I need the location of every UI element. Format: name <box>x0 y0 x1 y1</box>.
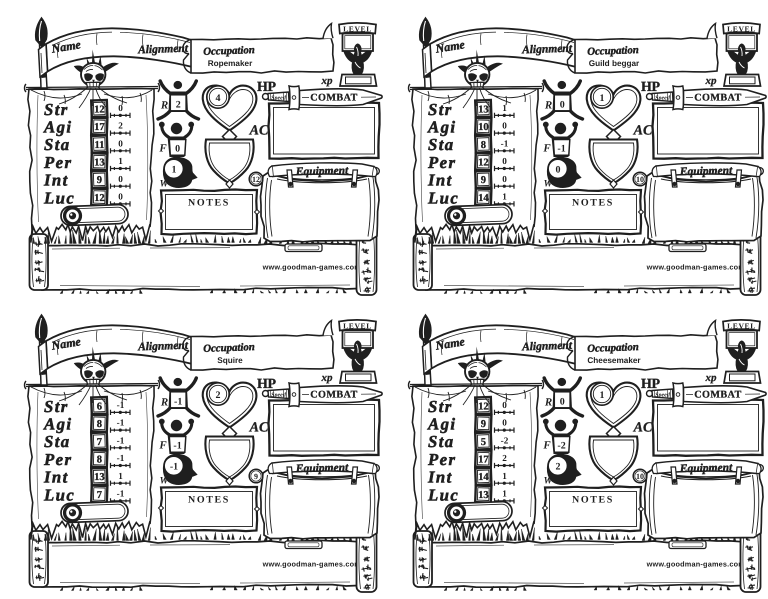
svg-text:12: 12 <box>94 193 105 204</box>
svg-text:13: 13 <box>94 472 105 483</box>
svg-text:Speed: Speed <box>271 391 287 398</box>
svg-text:10: 10 <box>636 472 644 481</box>
svg-text:Equipment: Equipment <box>679 165 734 178</box>
svg-text:LEVEL: LEVEL <box>727 25 756 34</box>
svg-text:LEVEL: LEVEL <box>343 25 372 34</box>
svg-text:7: 7 <box>97 437 102 448</box>
svg-text:-1: -1 <box>117 489 125 499</box>
svg-text:www.goodman-games.com: www.goodman-games.com <box>262 560 362 569</box>
svg-text:AC: AC <box>633 124 653 139</box>
svg-text:-1: -1 <box>501 138 509 148</box>
svg-text:0: 0 <box>118 103 123 113</box>
svg-text:xp: xp <box>705 372 718 384</box>
svg-text:7: 7 <box>97 490 102 501</box>
svg-text:NOTES: NOTES <box>572 198 614 209</box>
svg-text:13: 13 <box>478 104 489 115</box>
svg-text:Sta: Sta <box>428 432 455 451</box>
svg-text:1: 1 <box>118 471 123 481</box>
svg-text:HP: HP <box>641 377 660 392</box>
svg-text:2: 2 <box>216 390 221 401</box>
svg-text:R: R <box>160 100 168 112</box>
svg-text:Str: Str <box>428 397 453 416</box>
svg-text:COMBAT: COMBAT <box>694 93 742 104</box>
svg-text:0: 0 <box>118 174 123 184</box>
svg-text:xp: xp <box>321 75 334 87</box>
svg-text:6: 6 <box>97 401 102 412</box>
svg-text:Occupation: Occupation <box>203 44 255 58</box>
svg-text:Guild beggar: Guild beggar <box>589 59 640 68</box>
svg-text:R: R <box>160 397 168 409</box>
svg-text:2: 2 <box>118 121 123 131</box>
svg-text:0: 0 <box>175 144 180 155</box>
svg-text:Int: Int <box>427 171 453 190</box>
svg-text:0: 0 <box>502 156 507 166</box>
svg-text:8: 8 <box>97 455 102 466</box>
svg-text:F: F <box>158 440 167 452</box>
svg-text:xp: xp <box>705 75 718 87</box>
svg-text:4: 4 <box>216 93 221 104</box>
svg-text:2: 2 <box>176 99 181 110</box>
svg-text:0: 0 <box>502 121 507 131</box>
svg-text:Sta: Sta <box>44 432 71 451</box>
svg-text:www.goodman-games.com: www.goodman-games.com <box>646 263 746 272</box>
svg-text:-1: -1 <box>173 441 181 452</box>
svg-text:2: 2 <box>556 462 561 473</box>
svg-text:10: 10 <box>636 175 644 184</box>
svg-text:Alignment: Alignment <box>137 43 189 57</box>
svg-text:11: 11 <box>94 140 104 151</box>
svg-text:0: 0 <box>118 138 123 148</box>
svg-text:Squire: Squire <box>217 356 243 365</box>
svg-text:HP: HP <box>257 377 276 392</box>
svg-text:Equipment: Equipment <box>679 462 734 475</box>
svg-text:Occupation: Occupation <box>203 341 255 355</box>
svg-text:Str: Str <box>428 100 453 119</box>
svg-text:1: 1 <box>118 156 123 166</box>
svg-text:Speed: Speed <box>655 94 671 101</box>
svg-text:14: 14 <box>478 193 489 204</box>
svg-text:xp: xp <box>321 372 334 384</box>
svg-text:9: 9 <box>481 175 486 186</box>
svg-text:W: W <box>544 179 554 190</box>
svg-text:COMBAT: COMBAT <box>310 390 358 401</box>
svg-text:-1: -1 <box>174 396 182 407</box>
svg-text:W: W <box>160 476 170 487</box>
svg-text:Luc: Luc <box>43 188 75 207</box>
svg-text:8: 8 <box>481 140 486 151</box>
svg-text:www.goodman-games.com: www.goodman-games.com <box>646 560 746 569</box>
svg-text:F: F <box>542 143 551 155</box>
svg-text:Alignment: Alignment <box>137 340 189 354</box>
svg-text:1: 1 <box>600 390 605 401</box>
svg-text:0: 0 <box>502 418 507 428</box>
svg-text:Int: Int <box>43 468 69 487</box>
svg-text:R: R <box>544 100 552 112</box>
svg-text:Speed: Speed <box>655 391 671 398</box>
svg-text:-2: -2 <box>557 441 565 452</box>
svg-text:Str: Str <box>44 397 69 416</box>
svg-text:-1: -1 <box>170 462 178 473</box>
svg-text:1: 1 <box>502 192 507 202</box>
svg-text:Agi: Agi <box>43 118 72 137</box>
svg-text:Int: Int <box>427 468 453 487</box>
svg-text:Per: Per <box>427 450 456 469</box>
svg-text:0: 0 <box>118 192 123 202</box>
svg-text:Occupation: Occupation <box>587 44 639 58</box>
svg-text:Per: Per <box>43 450 72 469</box>
svg-text:HP: HP <box>257 80 276 95</box>
svg-text:Ropemaker: Ropemaker <box>208 59 253 68</box>
svg-text:AC: AC <box>633 421 653 436</box>
svg-text:0: 0 <box>560 99 565 110</box>
svg-text:0: 0 <box>502 400 507 410</box>
svg-text:1: 1 <box>502 471 507 481</box>
svg-text:www.goodman-games.com: www.goodman-games.com <box>262 263 362 272</box>
svg-text:NOTES: NOTES <box>188 495 230 506</box>
svg-text:17: 17 <box>478 455 489 466</box>
svg-text:-2: -2 <box>501 435 509 445</box>
svg-text:13: 13 <box>94 158 105 169</box>
svg-text:Luc: Luc <box>427 485 459 504</box>
svg-text:R: R <box>544 397 552 409</box>
svg-text:0: 0 <box>560 396 565 407</box>
svg-text:9: 9 <box>254 472 258 481</box>
svg-text:Equipment: Equipment <box>295 165 350 178</box>
svg-text:NOTES: NOTES <box>572 495 614 506</box>
svg-text:-1: -1 <box>117 418 125 428</box>
svg-text:AC: AC <box>249 124 269 139</box>
svg-text:COMBAT: COMBAT <box>694 390 742 401</box>
svg-text:NOTES: NOTES <box>188 198 230 209</box>
svg-text:F: F <box>158 143 167 155</box>
svg-text:Per: Per <box>43 153 72 172</box>
svg-text:Sta: Sta <box>428 135 455 154</box>
svg-text:9: 9 <box>481 419 486 430</box>
svg-text:1: 1 <box>502 103 507 113</box>
svg-text:5: 5 <box>481 437 486 448</box>
svg-text:1: 1 <box>172 165 177 176</box>
svg-text:10: 10 <box>478 122 489 133</box>
svg-text:Alignment: Alignment <box>521 43 573 57</box>
svg-text:1: 1 <box>600 93 605 104</box>
svg-text:9: 9 <box>97 175 102 186</box>
svg-text:14: 14 <box>478 472 489 483</box>
svg-text:0: 0 <box>502 174 507 184</box>
svg-text:AC: AC <box>249 421 269 436</box>
svg-text:LEVEL: LEVEL <box>727 322 756 331</box>
svg-text:Occupation: Occupation <box>587 341 639 355</box>
svg-text:-1: -1 <box>557 144 565 155</box>
svg-text:-1: -1 <box>117 453 125 463</box>
svg-text:12: 12 <box>478 401 489 412</box>
svg-text:Speed: Speed <box>271 94 287 101</box>
svg-text:W: W <box>160 179 170 190</box>
svg-text:1: 1 <box>502 489 507 499</box>
svg-text:Equipment: Equipment <box>295 462 350 475</box>
svg-text:W: W <box>544 476 554 487</box>
svg-text:COMBAT: COMBAT <box>310 93 358 104</box>
svg-text:Luc: Luc <box>427 188 459 207</box>
svg-text:Str: Str <box>44 100 69 119</box>
svg-text:13: 13 <box>478 490 489 501</box>
svg-text:HP: HP <box>641 80 660 95</box>
svg-text:12: 12 <box>478 158 489 169</box>
svg-text:Cheesemaker: Cheesemaker <box>587 356 641 365</box>
svg-text:Agi: Agi <box>427 118 456 137</box>
svg-text:Alignment: Alignment <box>521 340 573 354</box>
svg-text:Luc: Luc <box>43 485 75 504</box>
svg-text:-1: -1 <box>117 400 125 410</box>
svg-text:Int: Int <box>43 171 69 190</box>
svg-text:F: F <box>542 440 551 452</box>
svg-text:Agi: Agi <box>43 415 72 434</box>
svg-text:0: 0 <box>556 165 561 176</box>
svg-text:12: 12 <box>252 175 260 184</box>
svg-text:LEVEL: LEVEL <box>343 322 372 331</box>
svg-text:8: 8 <box>97 419 102 430</box>
svg-text:Agi: Agi <box>427 415 456 434</box>
svg-text:-1: -1 <box>117 435 125 445</box>
svg-text:17: 17 <box>94 122 105 133</box>
svg-text:Per: Per <box>427 153 456 172</box>
svg-text:Sta: Sta <box>44 135 71 154</box>
svg-text:2: 2 <box>502 453 507 463</box>
svg-text:12: 12 <box>94 104 105 115</box>
